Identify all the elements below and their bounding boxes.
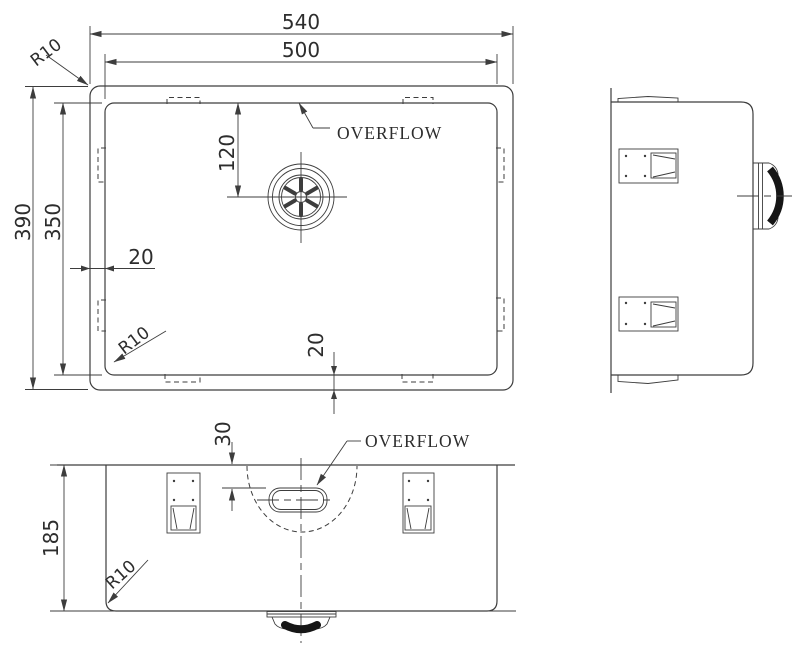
r10-front-label: R10	[102, 556, 140, 593]
sink-drawing-svg: 540 500 390 350 120	[0, 0, 800, 668]
rim-tab-bottom	[618, 375, 678, 384]
dim-20-bottom: 20	[304, 332, 337, 414]
dim-20-bottom-label: 20	[304, 332, 328, 357]
dim-185-label: 185	[39, 519, 63, 557]
sink-outer-rim-outline	[90, 86, 513, 390]
callout-overflow-front: OVERFLOW	[317, 431, 470, 485]
dim-540-label: 540	[282, 10, 320, 34]
overflow-slot	[257, 488, 334, 512]
overflow-fitting-side	[737, 163, 792, 229]
overflow-top-label: OVERFLOW	[337, 123, 442, 143]
bowl-recess-hidden-arc	[247, 466, 357, 532]
front-body-outline	[106, 465, 497, 611]
top-view: 540 500 390 350 120	[11, 10, 513, 414]
dim-20-side: 20	[70, 245, 155, 272]
side-body-outline	[611, 102, 753, 375]
dim-120: 120	[215, 103, 263, 197]
dim-350: 350	[41, 103, 102, 375]
drawing-sheet: 540 500 390 350 120	[0, 0, 800, 668]
callout-r10-bowl: R10	[114, 323, 166, 362]
dim-120-label: 120	[215, 134, 239, 172]
drain-gasket-dark-band	[285, 625, 317, 629]
dim-500-label: 500	[282, 38, 320, 62]
drain-fitting-front	[267, 612, 336, 630]
dim-350-label: 350	[41, 203, 65, 241]
front-view: 185 30 R10 OVERFLOW	[39, 421, 516, 643]
side-clip-upper	[619, 149, 678, 183]
side-clip-lower	[619, 297, 678, 331]
callout-r10-outer: R10	[27, 35, 88, 85]
dim-20-side-label: 20	[128, 245, 153, 269]
overflow-front-label: OVERFLOW	[365, 431, 470, 451]
dim-30: 30	[211, 421, 266, 511]
callout-overflow-top: OVERFLOW	[299, 103, 442, 143]
side-view	[611, 88, 792, 393]
dim-185: 185	[39, 465, 108, 611]
drain-strainer	[255, 152, 347, 243]
callout-r10-front: R10	[102, 556, 148, 603]
front-clip-right	[403, 473, 434, 533]
dim-390-label: 390	[11, 203, 35, 241]
front-clip-left	[167, 473, 200, 533]
dim-30-label: 30	[211, 421, 235, 446]
rim-tab-top	[618, 97, 678, 103]
r10-outer-label: R10	[27, 35, 66, 71]
dim-500: 500	[105, 38, 497, 99]
r10-bowl-label: R10	[115, 323, 154, 359]
